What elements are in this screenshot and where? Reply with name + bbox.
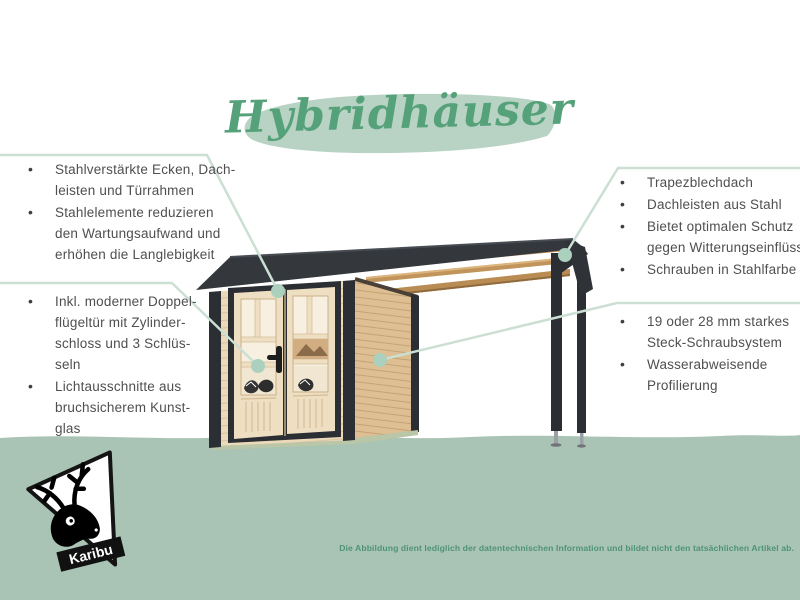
feature-item: • Stahlelemente reduzieren den Wartungsa…	[28, 202, 235, 265]
feature-line: flügeltür mit Zylinder-	[55, 312, 197, 333]
side-wall-corner-trim	[411, 294, 419, 433]
feature-item: • Schrauben in Stahlfarbe	[620, 259, 800, 280]
canopy-post-front	[551, 253, 562, 431]
feature-line: Steck-Schraubsystem	[647, 332, 789, 353]
callout-dot-side-wall	[373, 353, 387, 367]
ground	[0, 435, 800, 600]
bullet-icon: •	[620, 259, 632, 280]
footer-disclaimer: Die Abbildung dient lediglich der datent…	[339, 543, 794, 553]
feature-line: glas	[55, 418, 190, 439]
bullet-icon: •	[620, 311, 632, 353]
door-glass-left	[241, 299, 276, 395]
bullet-icon: •	[620, 194, 632, 215]
feature-line: seln	[55, 354, 197, 375]
bullet-icon: •	[620, 172, 632, 193]
feature-line: Bietet optimalen Schutz	[647, 216, 800, 237]
feature-line: Schrauben in Stahlfarbe	[647, 259, 796, 280]
post-foot-front	[554, 431, 558, 444]
feature-item: • Trapezblechdach	[620, 172, 800, 193]
double-door	[228, 281, 341, 443]
feature-item: • Dachleisten aus Stahl	[620, 194, 800, 215]
front-right-corner-trim	[343, 280, 355, 441]
callout-dot-door-frame	[271, 284, 285, 298]
title-brush-stroke	[245, 94, 556, 153]
feature-line: 19 oder 28 mm starkes	[647, 311, 789, 332]
post-foot-disc-front	[551, 443, 562, 447]
feature-line: Lichtausschnitte aus	[55, 376, 190, 397]
feature-line: bruchsicherem Kunst-	[55, 397, 190, 418]
bullet-icon: •	[620, 354, 632, 396]
feature-line: den Wartungsaufwand und	[55, 223, 220, 244]
post-foot-back	[580, 433, 584, 445]
bullet-icon: •	[28, 376, 40, 439]
infographic-page: Karibu Hybridhäuser • Stahlverstärkte Ec…	[0, 0, 800, 600]
feature-item: • 19 oder 28 mm starkes Steck-Schraubsys…	[620, 311, 789, 353]
feature-line: leisten und Türrahmen	[55, 180, 235, 201]
feature-line: Inkl. moderner Doppel-	[55, 291, 197, 312]
feature-line: Dachleisten aus Stahl	[647, 194, 782, 215]
front-left-corner-trim	[209, 291, 221, 448]
feature-item: • Inkl. moderner Doppel- flügeltür mit Z…	[28, 291, 197, 375]
feature-group-bottom-left: • Inkl. moderner Doppel- flügeltür mit Z…	[28, 291, 197, 440]
feature-line: Profilierung	[647, 375, 768, 396]
post-foot-disc-back	[577, 444, 586, 447]
feature-line: gegen Witterungseinflüsse	[647, 237, 800, 258]
feature-line: Stahlelemente reduzieren	[55, 202, 220, 223]
bullet-icon: •	[28, 291, 40, 375]
feature-line: Wasserabweisende	[647, 354, 768, 375]
bullet-icon: •	[28, 202, 40, 265]
feature-line: erhöhen die Langlebigkeit	[55, 244, 220, 265]
feature-item: • Stahlverstärkte Ecken, Dach- leisten u…	[28, 159, 235, 201]
door-glass-right	[293, 296, 328, 392]
callout-dot-roof-corner	[558, 248, 572, 262]
feature-item: • Bietet optimalen Schutz gegen Witterun…	[620, 216, 800, 258]
feature-group-bottom-right: • 19 oder 28 mm starkes Steck-Schraubsys…	[620, 311, 789, 397]
feature-item: • Lichtausschnitte aus bruchsicherem Kun…	[28, 376, 197, 439]
feature-group-top-right: • Trapezblechdach • Dachleisten aus Stah…	[620, 172, 800, 281]
feature-line: Stahlverstärkte Ecken, Dach-	[55, 159, 235, 180]
feature-group-top-left: • Stahlverstärkte Ecken, Dach- leisten u…	[28, 159, 235, 266]
bullet-icon: •	[620, 216, 632, 258]
garden-shed-illustration	[196, 239, 593, 450]
callout-dot-door-glass	[251, 359, 265, 373]
feature-item: • Wasserabweisende Profilierung	[620, 354, 789, 396]
bullet-icon: •	[28, 159, 40, 201]
feature-line: Trapezblechdach	[647, 172, 753, 193]
feature-line: schloss und 3 Schlüs-	[55, 333, 197, 354]
